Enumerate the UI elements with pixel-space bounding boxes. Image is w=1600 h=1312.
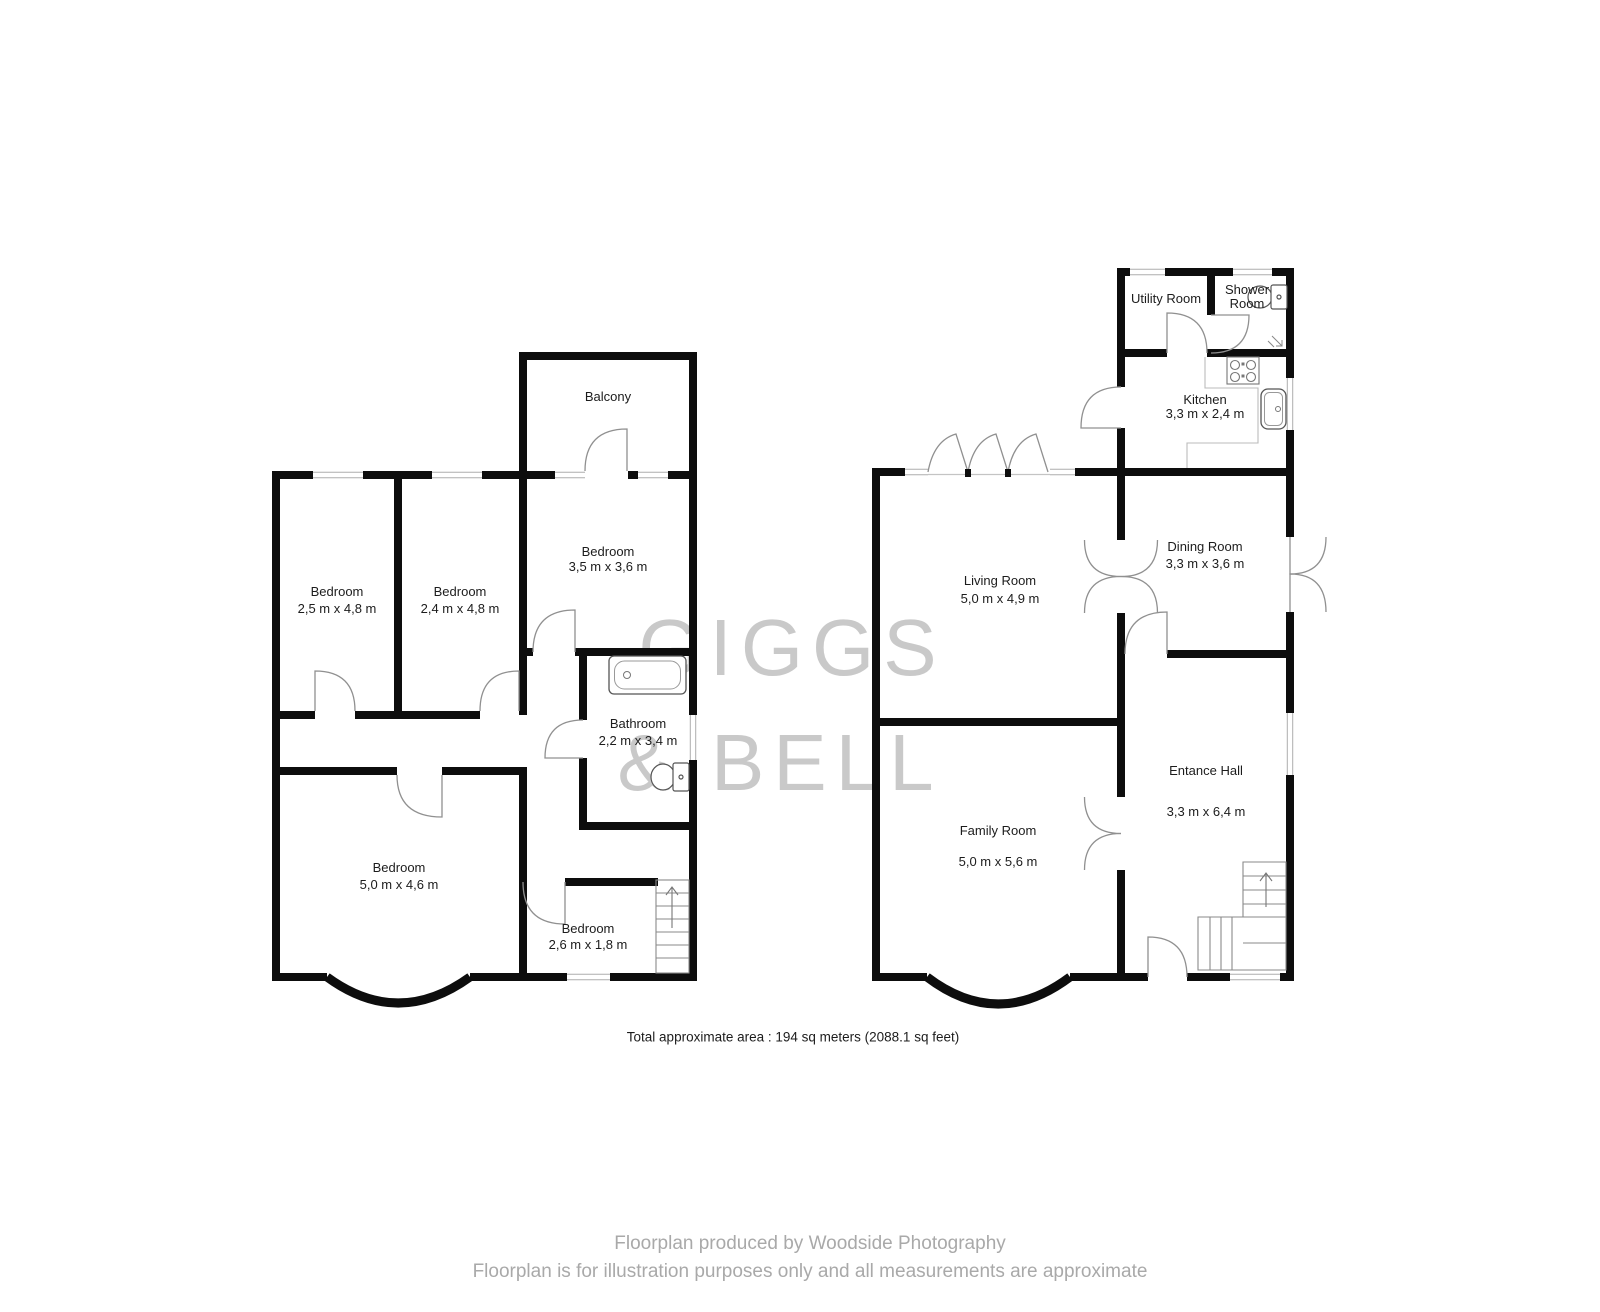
room-label-bedroom-25: Bedroom: [311, 585, 364, 599]
room-label-entrance-hall: Entance Hall: [1169, 764, 1243, 778]
stairs-icon-right-plan: [1198, 862, 1286, 970]
room-label-bathroom: Bathroom: [610, 717, 666, 731]
sink-icon: [1261, 389, 1286, 429]
room-label-family-room: Family Room: [960, 824, 1037, 838]
room-dims-family-room: 5,0 m x 5,6 m: [959, 855, 1038, 869]
room-dims-bathroom: 2,2 m x 3,4 m: [599, 734, 678, 748]
room-label-bedroom-50: Bedroom: [373, 861, 426, 875]
shower-drain-icon: [1268, 336, 1282, 347]
room-label-dining-room: Dining Room: [1167, 540, 1242, 554]
room-label-shower-room: Shower Room: [1211, 283, 1283, 311]
room-dims-bedroom-25: 2,5 m x 4,8 m: [298, 602, 377, 616]
room-dims-living-room: 5,0 m x 4,9 m: [961, 592, 1040, 606]
room-dims-bedroom-35: 3,5 m x 3,6 m: [569, 560, 648, 574]
floorplan-page: GIGGS & BELL: [0, 0, 1600, 1312]
room-dims-bedroom-26: 2,6 m x 1,8 m: [549, 938, 628, 952]
room-dims-bedroom-50: 5,0 m x 4,6 m: [360, 878, 439, 892]
floorplan-drawing: [0, 0, 1600, 1312]
bathtub-icon: [609, 656, 686, 694]
room-dims-kitchen: 3,3 m x 2,4 m: [1166, 407, 1245, 421]
footer-credit: Floorplan produced by Woodside Photograp…: [614, 1233, 1006, 1255]
room-label-bedroom-24: Bedroom: [434, 585, 487, 599]
room-dims-entrance-hall: 3,3 m x 6,4 m: [1167, 805, 1246, 819]
room-label-bedroom-35: Bedroom: [582, 545, 635, 559]
room-label-utility-room: Utility Room: [1130, 292, 1202, 306]
room-label-kitchen: Kitchen: [1183, 393, 1226, 407]
toilet-icon-bathroom: [651, 763, 689, 791]
hob-icon: [1227, 357, 1259, 384]
room-label-bedroom-26: Bedroom: [562, 922, 615, 936]
room-label-living-room: Living Room: [964, 574, 1036, 588]
room-dims-bedroom-24: 2,4 m x 4,8 m: [421, 602, 500, 616]
footer-disclaimer: Floorplan is for illustration purposes o…: [473, 1261, 1148, 1283]
room-dims-dining-room: 3,3 m x 3,6 m: [1166, 557, 1245, 571]
room-label-balcony: Balcony: [585, 390, 631, 404]
total-area-text: Total approximate area : 194 sq meters (…: [627, 1030, 959, 1045]
stairs-icon-left-plan: [656, 880, 689, 973]
bay-window-left-plan: [327, 977, 470, 1003]
bay-window-right-plan: [927, 977, 1070, 1004]
